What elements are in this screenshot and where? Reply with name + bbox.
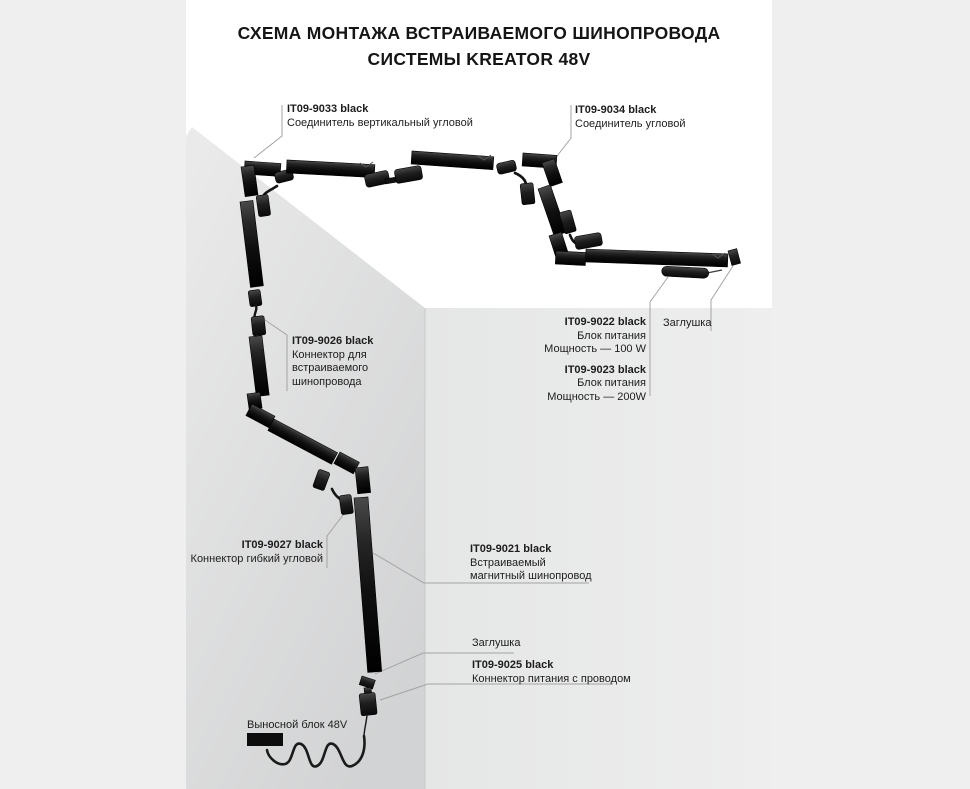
remote-power-block xyxy=(247,733,283,746)
installation-diagram: СХЕМА МОНТАЖА ВСТРАИВАЕМОГО ШИНОПРОВОДА … xyxy=(0,0,970,789)
title-line-2: СИСТЕМЫ KREATOR 48V xyxy=(368,49,591,69)
label-9025: IT09-9025 black Коннектор питания с пров… xyxy=(472,659,631,686)
part-desc: Блок питания xyxy=(544,377,646,391)
part-desc: Заглушка xyxy=(472,637,520,651)
part-desc: Коннектор питания с проводом xyxy=(472,673,631,687)
part-desc: Мощность — 200W xyxy=(544,391,646,405)
part-code: IT09-9034 black xyxy=(575,104,686,118)
part-desc: Встраиваемый xyxy=(470,557,592,571)
label-9021: IT09-9021 black Встраиваемый магнитный ш… xyxy=(470,543,592,584)
part-code: IT09-9025 black xyxy=(472,659,631,673)
part-code: IT09-9021 black xyxy=(470,543,592,557)
part-code: IT09-9023 black xyxy=(544,364,646,378)
label-9026: IT09-9026 black Коннектор для встраиваем… xyxy=(292,335,373,389)
part-desc: встраиваемого xyxy=(292,362,373,376)
label-power-supplies: IT09-9022 black Блок питания Мощность — … xyxy=(544,316,646,404)
part-code: IT09-9022 black xyxy=(544,316,646,330)
part-desc: Блок питания xyxy=(544,330,646,344)
part-code: IT09-9026 black xyxy=(292,335,373,349)
part-desc: магнитный шинопровод xyxy=(470,570,592,584)
part-desc: шинопровода xyxy=(292,376,373,390)
part-desc: Выносной блок 48V xyxy=(247,719,347,733)
part-desc: Коннектор гибкий угловой xyxy=(191,553,323,567)
label-9027: IT09-9027 black Коннектор гибкий угловой xyxy=(191,539,323,566)
label-plug-top: Заглушка xyxy=(663,317,711,331)
page-title: СХЕМА МОНТАЖА ВСТРАИВАЕМОГО ШИНОПРОВОДА … xyxy=(186,20,772,72)
title-line-1: СХЕМА МОНТАЖА ВСТРАИВАЕМОГО ШИНОПРОВОДА xyxy=(238,23,721,43)
part-desc: Заглушка xyxy=(663,317,711,331)
part-desc: Соединитель угловой xyxy=(575,118,686,132)
part-code: IT09-9027 black xyxy=(191,539,323,553)
label-plug-bottom: Заглушка xyxy=(472,637,520,651)
part-desc: Мощность — 100 W xyxy=(544,343,646,357)
part-desc: Соединитель вертикальный угловой xyxy=(287,117,473,131)
label-remote-block: Выносной блок 48V xyxy=(247,719,347,733)
label-9034: IT09-9034 black Соединитель угловой xyxy=(575,104,686,131)
part-desc: Коннектор для xyxy=(292,349,373,363)
label-9033: IT09-9033 black Соединитель вертикальный… xyxy=(287,103,473,130)
part-code: IT09-9033 black xyxy=(287,103,473,117)
